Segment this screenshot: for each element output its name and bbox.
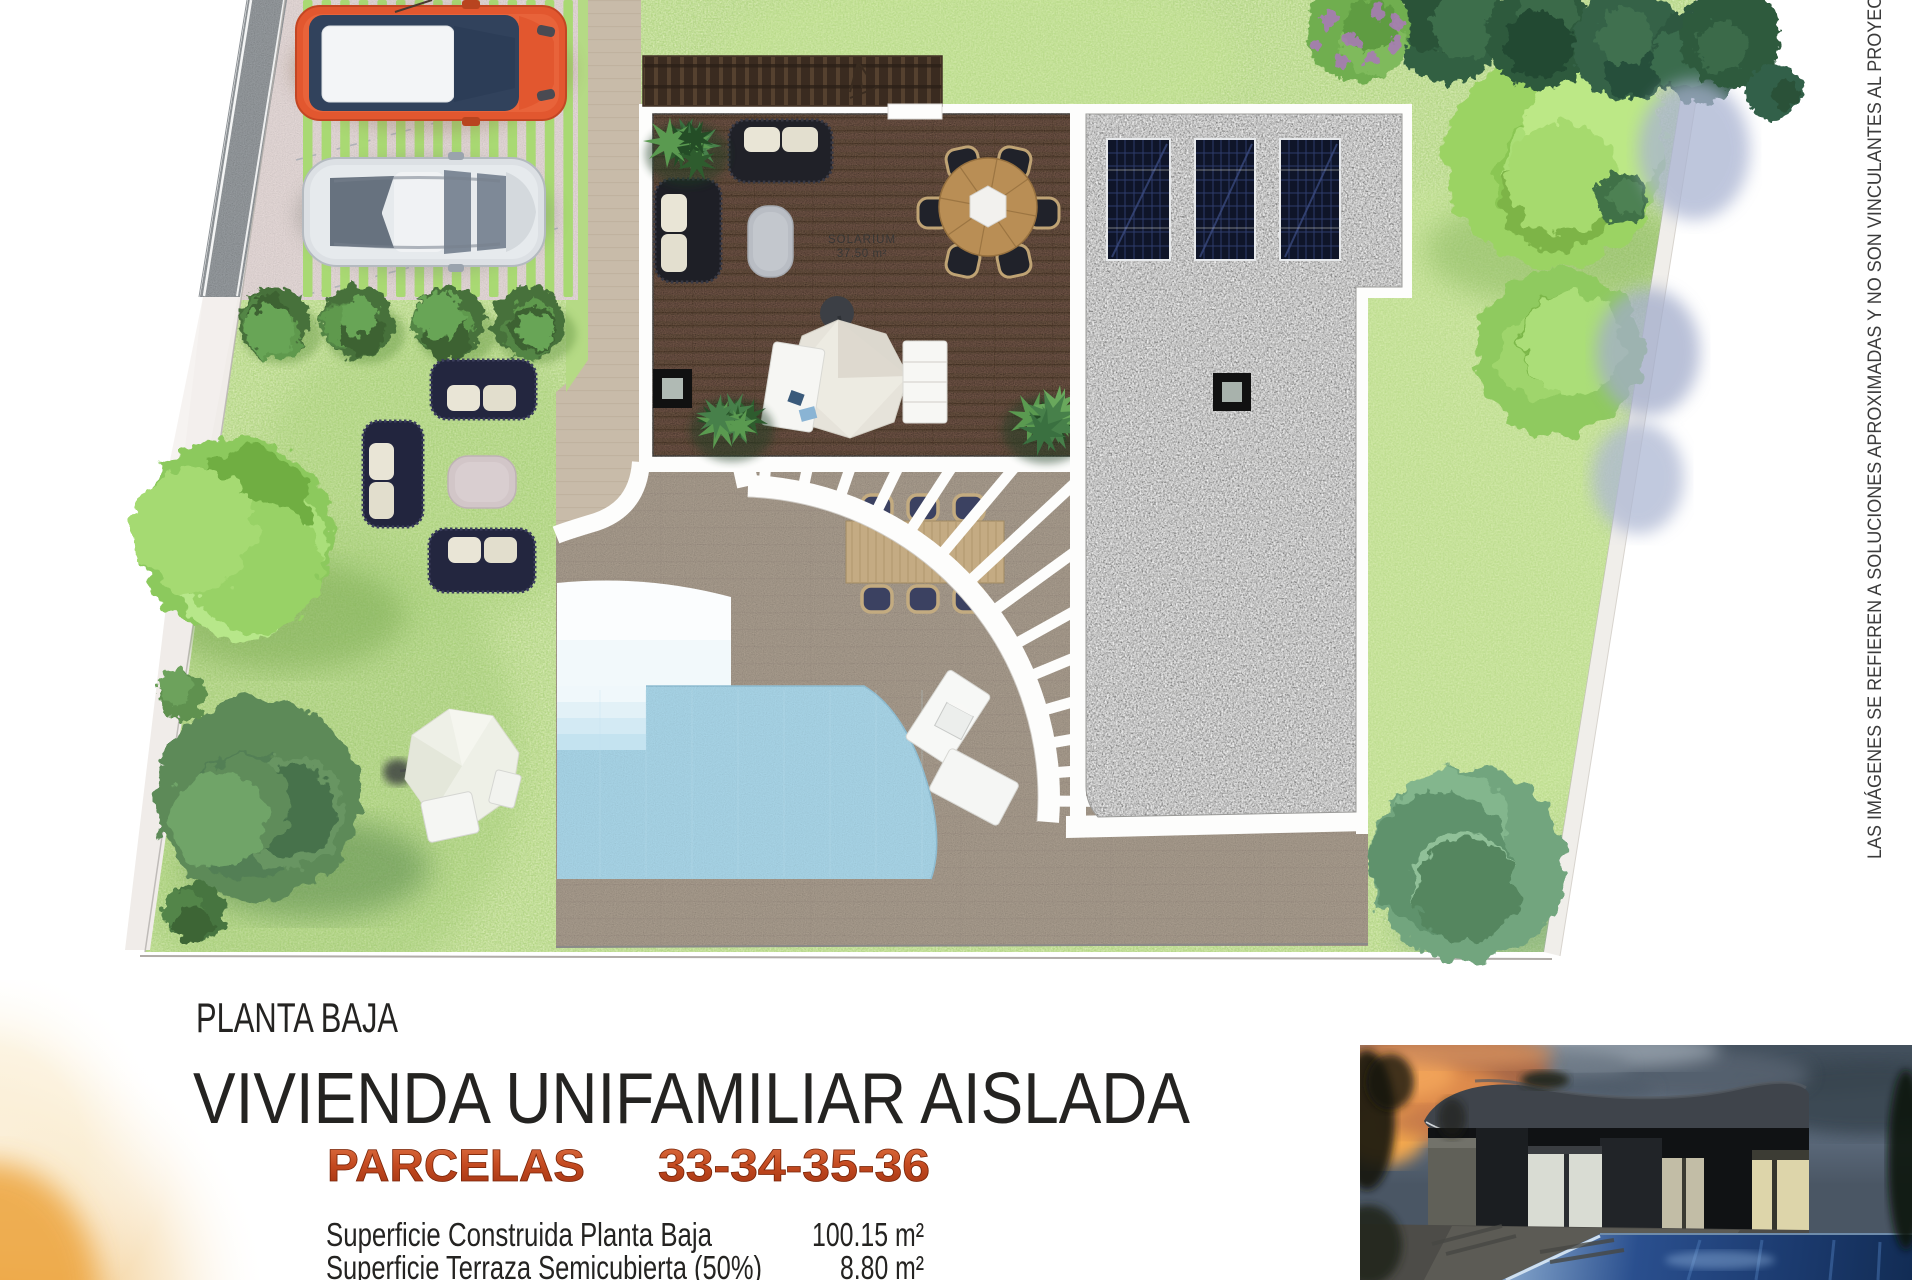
svg-text:100.15 m²: 100.15 m² [812, 1216, 924, 1253]
svg-text:37.50 m²: 37.50 m² [837, 248, 887, 260]
svg-text:SOLARIUM: SOLARIUM [828, 234, 896, 246]
svg-text:LAS IMÁGENES SE REFIEREN A SOL: LAS IMÁGENES SE REFIEREN A SOLUCIONES AP… [1863, 0, 1886, 859]
svg-text:PARCELAS: PARCELAS [327, 1140, 585, 1191]
svg-text:Superficie Terraza Semicubiert: Superficie Terraza Semicubierta (50%) [326, 1249, 762, 1280]
svg-text:33-34-35-36: 33-34-35-36 [658, 1140, 930, 1191]
svg-text:PLANTA BAJA: PLANTA BAJA [196, 994, 398, 1041]
svg-text:8.80 m²: 8.80 m² [840, 1249, 924, 1280]
svg-text:VIVIENDA UNIFAMILIAR AISLADA: VIVIENDA UNIFAMILIAR AISLADA [193, 1059, 1190, 1139]
svg-text:Superficie Construida Planta B: Superficie Construida Planta Baja [326, 1216, 713, 1253]
